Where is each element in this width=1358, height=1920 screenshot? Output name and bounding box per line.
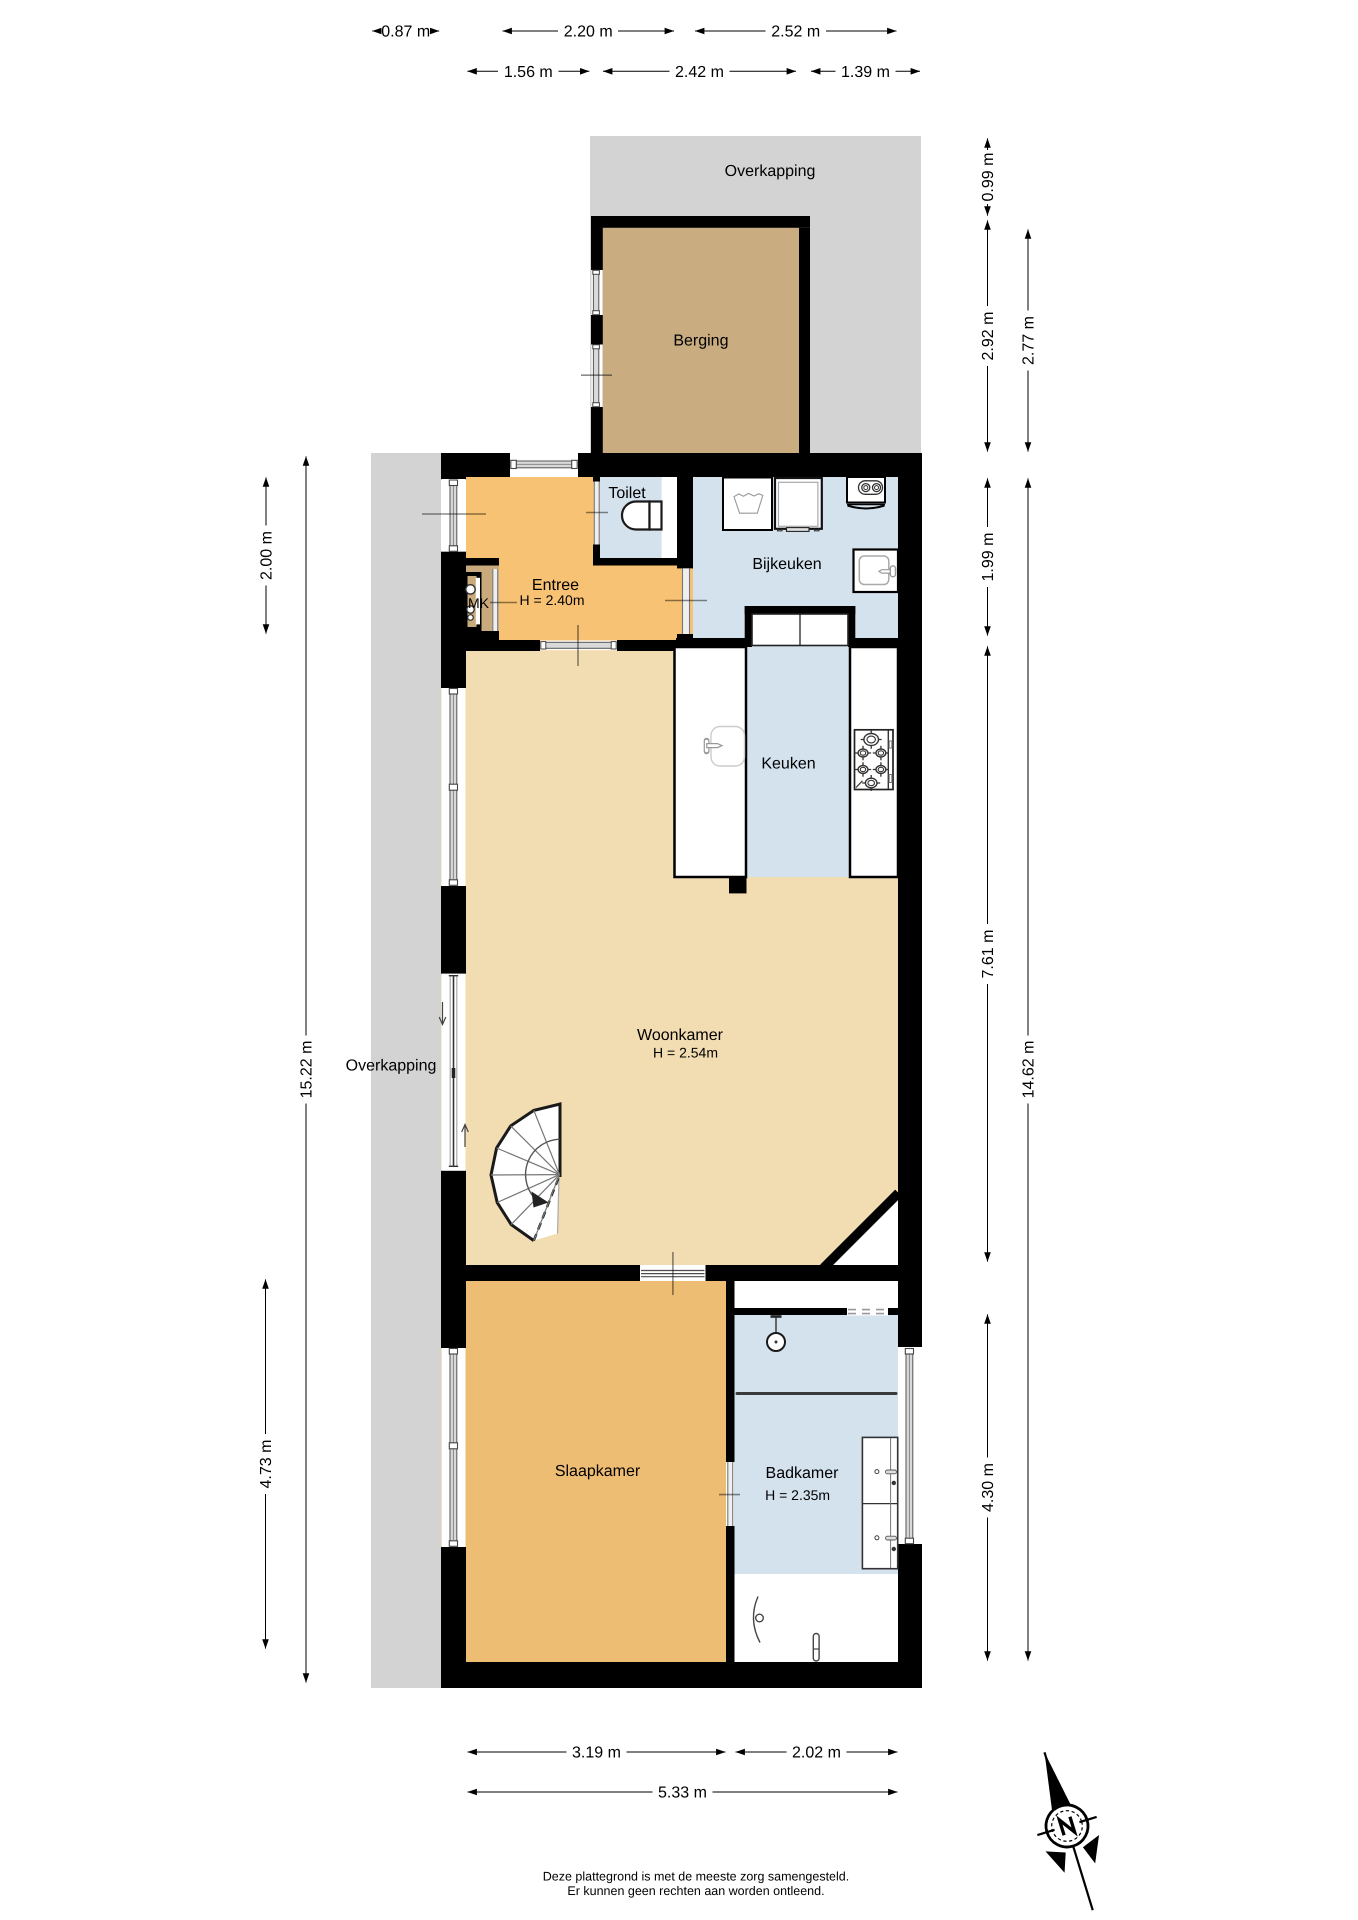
svg-text:Slaapkamer: Slaapkamer	[555, 1463, 641, 1480]
svg-text:2.92 m: 2.92 m	[980, 312, 997, 361]
svg-text:15.22 m: 15.22 m	[299, 1041, 316, 1099]
svg-text:5.33 m: 5.33 m	[658, 1785, 707, 1802]
svg-text:4.30 m: 4.30 m	[980, 1463, 997, 1512]
svg-text:Woonkamer: Woonkamer	[637, 1027, 724, 1044]
svg-text:0.87 m: 0.87 m	[381, 24, 430, 41]
svg-text:2.42 m: 2.42 m	[675, 64, 724, 81]
svg-text:1.39 m: 1.39 m	[841, 64, 890, 81]
svg-text:2.52 m: 2.52 m	[771, 24, 820, 41]
svg-text:0.99 m: 0.99 m	[980, 153, 997, 202]
svg-text:Er kunnen geen rechten aan wor: Er kunnen geen rechten aan worden ontlee…	[567, 1884, 824, 1898]
svg-text:Overkapping: Overkapping	[346, 1058, 437, 1075]
svg-text:3.19 m: 3.19 m	[572, 1745, 621, 1762]
svg-text:Badkamer: Badkamer	[766, 1465, 840, 1482]
svg-text:Toilet: Toilet	[608, 485, 646, 502]
svg-text:MK: MK	[468, 595, 490, 611]
svg-text:H = 2.54m: H = 2.54m	[653, 1045, 718, 1061]
svg-text:2.02 m: 2.02 m	[792, 1745, 841, 1762]
svg-text:4.73 m: 4.73 m	[258, 1440, 275, 1489]
svg-text:Keuken: Keuken	[761, 756, 815, 773]
svg-text:2.77 m: 2.77 m	[1021, 316, 1038, 365]
svg-text:Bijkeuken: Bijkeuken	[752, 556, 821, 573]
svg-text:Deze plattegrond is met de mee: Deze plattegrond is met de meeste zorg s…	[543, 1870, 849, 1884]
svg-text:Berging: Berging	[673, 332, 728, 349]
svg-text:2.00 m: 2.00 m	[259, 531, 276, 580]
svg-text:1.99 m: 1.99 m	[980, 533, 997, 582]
svg-text:7.61 m: 7.61 m	[980, 930, 997, 979]
svg-text:1.56 m: 1.56 m	[504, 64, 553, 81]
svg-text:Overkapping: Overkapping	[725, 163, 816, 180]
svg-text:H = 2.40m: H = 2.40m	[520, 592, 585, 608]
svg-text:2.20 m: 2.20 m	[564, 24, 613, 41]
svg-text:14.62 m: 14.62 m	[1021, 1041, 1038, 1099]
svg-text:H = 2.35m: H = 2.35m	[765, 1487, 830, 1503]
